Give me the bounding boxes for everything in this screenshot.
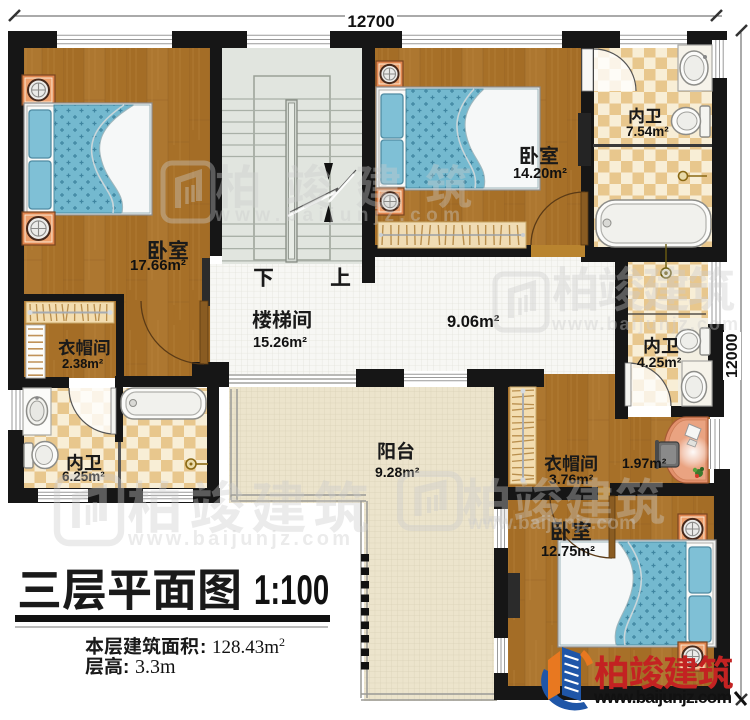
- svg-text:17.66m²: 17.66m²: [130, 257, 186, 274]
- svg-text:4.25m²: 4.25m²: [637, 354, 682, 370]
- svg-text:www.baijunjz.com: www.baijunjz.com: [467, 513, 636, 534]
- svg-text:12000: 12000: [724, 333, 741, 378]
- svg-text:12700: 12700: [347, 12, 394, 31]
- svg-text:1:100: 1:100: [254, 566, 329, 614]
- svg-text:7.54m²: 7.54m²: [626, 124, 669, 139]
- svg-text::: :: [123, 657, 129, 678]
- svg-text:3.3m: 3.3m: [135, 656, 176, 678]
- svg-text:9.06m²: 9.06m²: [447, 313, 500, 331]
- svg-text:128.43m2: 128.43m2: [212, 635, 285, 658]
- svg-text:12.75m²: 12.75m²: [541, 544, 595, 560]
- svg-text:15.26m²: 15.26m²: [253, 335, 307, 351]
- svg-text:1.97m²: 1.97m²: [622, 455, 667, 471]
- svg-text:www.baijunjz.com: www.baijunjz.com: [593, 687, 732, 707]
- svg-text::: :: [200, 637, 206, 658]
- svg-text:14.20m²: 14.20m²: [513, 166, 567, 182]
- svg-text:2.38m²: 2.38m²: [62, 356, 104, 371]
